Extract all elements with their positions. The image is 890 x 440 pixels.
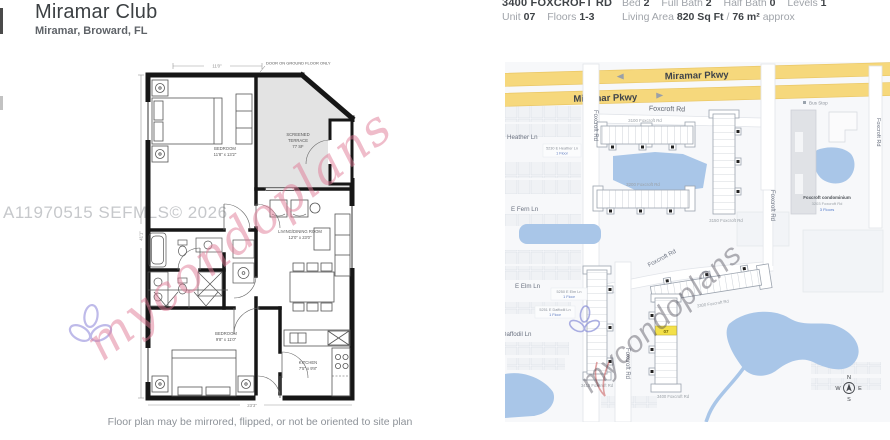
page-title: Miramar Club — [35, 1, 157, 24]
svg-text:1 Floor: 1 Floor — [549, 313, 562, 317]
svg-text:1 Floor: 1 Floor — [556, 152, 569, 156]
svg-text:Foxcroft condominium: Foxcroft condominium — [803, 195, 851, 200]
svg-text:3 Floors: 3 Floors — [820, 207, 834, 212]
unit-floors: Floors 1-3 — [547, 11, 594, 23]
stat-levels: Levels 1 — [787, 0, 826, 9]
bedroom1-size: 11'8" x 13'2" — [214, 152, 237, 157]
street-daffodil: Daffodil Ln — [505, 331, 532, 338]
foxcroft-label-left: Foxcroft Rd — [592, 110, 598, 141]
pkwy-label-upper: Miramar Pkwy — [665, 70, 730, 83]
stat-bed: Bed 2 — [622, 0, 649, 9]
terrace-label: SCREENED — [286, 132, 309, 137]
site-map[interactable]: Miramar Pkwy Miramar Pkwy — [505, 62, 890, 422]
brand-flower-icon — [68, 302, 114, 350]
kitchen-size: 7'5" x 9'8" — [299, 366, 318, 371]
street-heather: Heather Ln — [507, 134, 538, 141]
street-fern: E Fern Ln — [511, 206, 539, 213]
svg-text:1 Floor: 1 Floor — [563, 295, 576, 299]
living-size: 12'0" x 23'0" — [289, 235, 312, 240]
street-elm: E Elm Ln — [515, 283, 541, 290]
bus-stop-label: Bus Stop — [809, 101, 828, 106]
stat-half-bath: Half Bath 0 — [724, 0, 776, 9]
svg-text:3203 Foxcroft Rd: 3203 Foxcroft Rd — [812, 201, 843, 206]
foxcroft-label-right: Foxcroft Rd — [769, 190, 775, 221]
stat-living-area: Living Area 820 Sq Ft / 76 m² approx — [622, 10, 836, 24]
dim-left: 41'1" — [139, 231, 144, 241]
terrace-slider — [264, 188, 296, 191]
terrace-label2: TERRACE — [288, 138, 308, 143]
bedroom1-label: BEDROOM — [214, 146, 236, 151]
svg-text:S: S — [847, 397, 851, 403]
foxcroft-label-top: Foxcroft Rd — [649, 106, 685, 114]
svg-text:W: W — [835, 386, 841, 392]
stat-full-bath: Full Bath 2 — [661, 0, 711, 9]
building-3100-label: 3100 Foxcroft Rd — [628, 118, 662, 123]
unit-number: Unit 07 — [502, 11, 535, 23]
floorplan-disclaimer: Floor plan may be mirrored, flipped, or … — [100, 416, 420, 428]
foxcroft-label-far-right: Foxcroft Rd — [875, 118, 881, 146]
door-note: DOOR ON GROUND FLOOR ONLY — [266, 61, 331, 66]
svg-text:E: E — [858, 386, 862, 392]
building-3150-label: 3150 Foxcroft Rd — [709, 218, 743, 223]
kitchen-label: KITCHEN — [299, 360, 317, 365]
terrace-size: 77 SF — [292, 144, 304, 149]
bedroom2-closets — [148, 290, 228, 308]
living-label: LIVING/DINING ROOM — [278, 229, 322, 234]
edge-artifact — [0, 96, 3, 110]
unit-info-block: 3400 FOXCROFT RD Unit 07 Floors 1-3 — [502, 0, 612, 24]
page: Miramar Club Miramar, Broward, FL 3400 F… — [0, 0, 890, 440]
unit-address: 3400 FOXCROFT RD — [502, 0, 612, 10]
svg-text:N: N — [847, 375, 851, 381]
building-3400-label: 3400 Foxcroft Rd — [657, 394, 690, 399]
bedroom2-furniture — [152, 350, 254, 396]
unit-stats-block: Bed 2 Full Bath 2 Half Bath 0 Levels 1 L… — [622, 0, 836, 24]
building-3200-label: 3200 Foxcroft Rd — [626, 182, 660, 187]
svg-text:5250 E Elm Ln: 5250 E Elm Ln — [557, 290, 582, 294]
svg-text:5230 E Heather Ln: 5230 E Heather Ln — [546, 147, 578, 151]
page-subtitle: Miramar, Broward, FL — [35, 25, 147, 37]
dim-top: 11'0" — [212, 64, 222, 69]
svg-text:5251 E Daffodil Ln: 5251 E Daffodil Ln — [539, 308, 570, 312]
bus-stop-icon — [803, 101, 806, 104]
bedroom2-size: 9'8" x 11'0" — [216, 337, 237, 342]
living-furniture — [270, 200, 350, 311]
floor-plan: 11'0" 41'1" 23'3" DOOR ON GROUND FLOOR O… — [138, 56, 368, 412]
dim-bottom: 23'3" — [247, 403, 257, 408]
edge-artifact — [0, 8, 3, 34]
bedroom1-furniture — [152, 80, 252, 162]
bedroom2-label: BEDROOM — [215, 331, 237, 336]
